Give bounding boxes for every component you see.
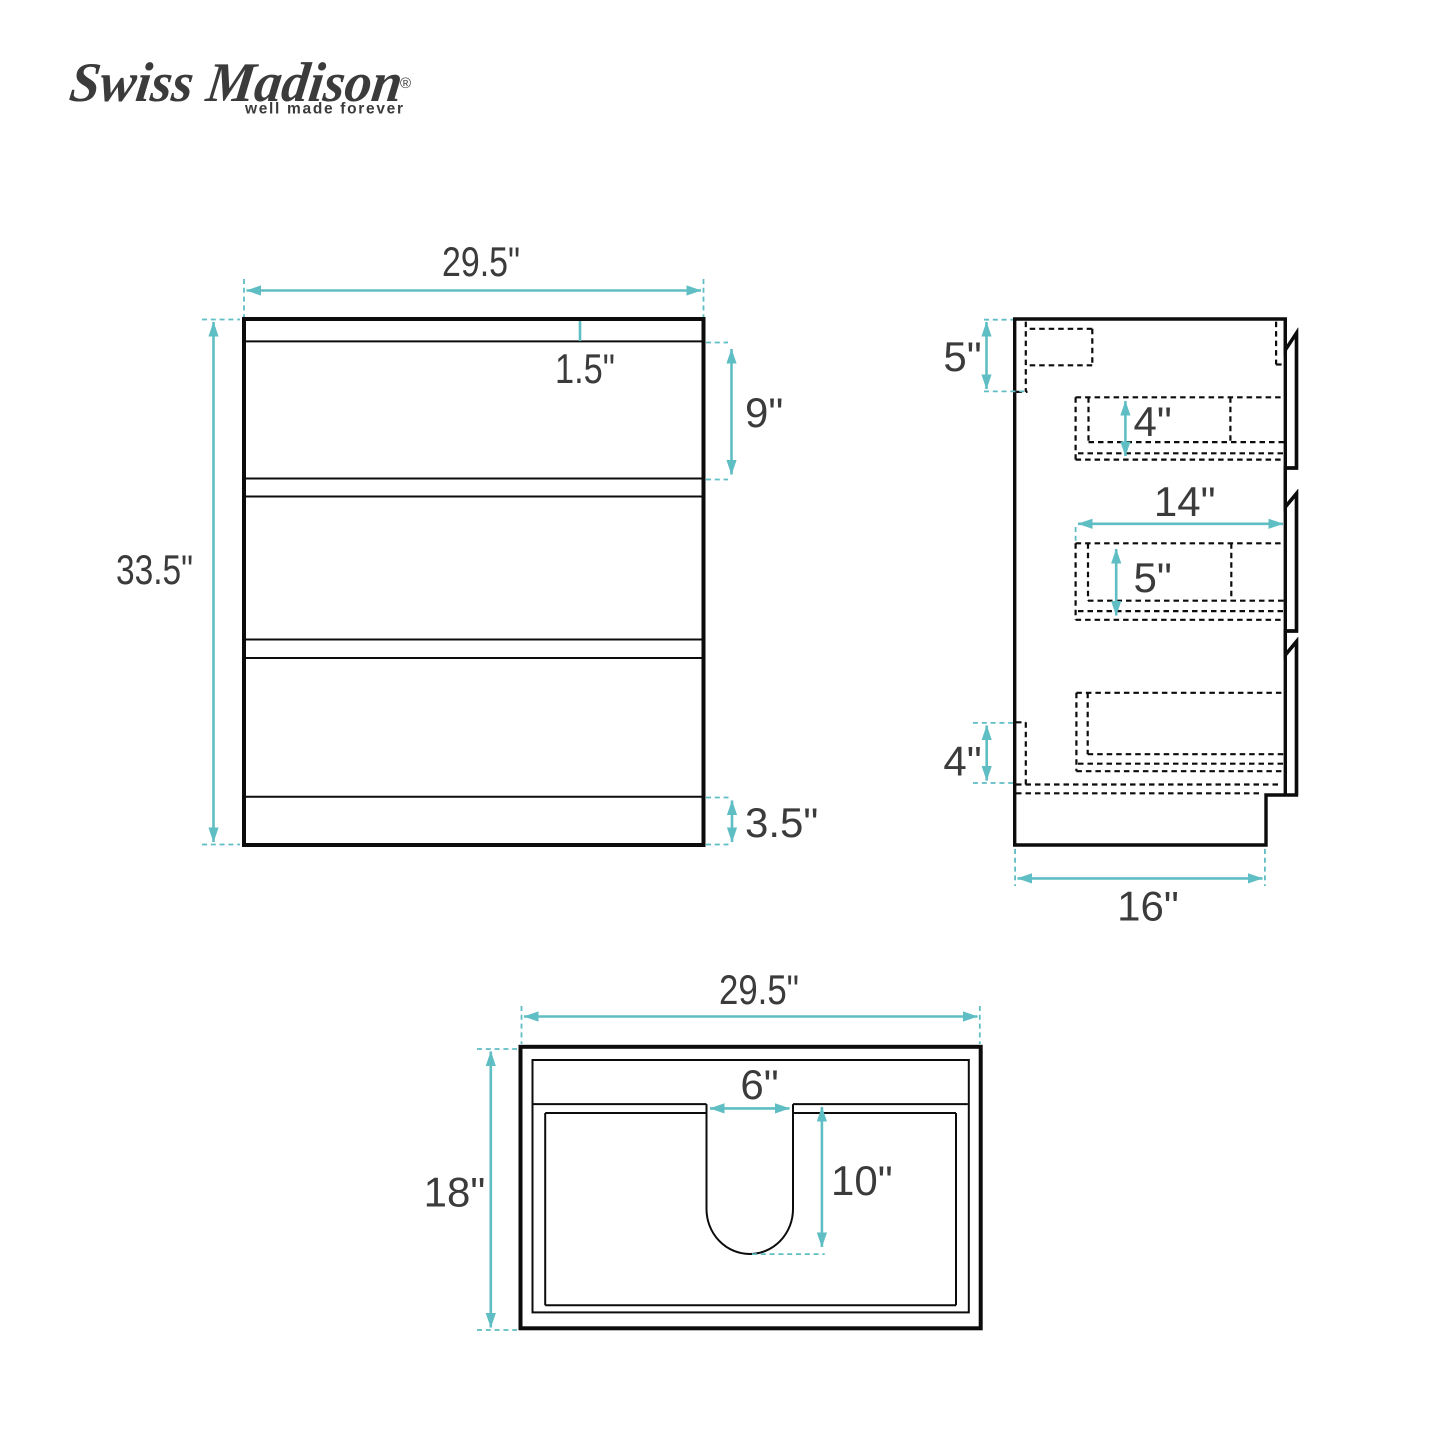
- svg-text:1.5": 1.5": [555, 345, 615, 392]
- svg-text:16": 16": [1117, 883, 1179, 930]
- svg-text:6": 6": [740, 1061, 778, 1108]
- svg-text:29.5": 29.5": [719, 966, 799, 1013]
- svg-text:29.5": 29.5": [442, 238, 520, 285]
- svg-text:5": 5": [1134, 554, 1172, 601]
- svg-text:18": 18": [424, 1169, 486, 1216]
- svg-text:10": 10": [831, 1157, 893, 1204]
- svg-text:5": 5": [943, 333, 981, 380]
- svg-text:®: ®: [400, 75, 411, 92]
- svg-text:4": 4": [1134, 398, 1172, 445]
- svg-text:3.5": 3.5": [745, 799, 818, 846]
- svg-text:4": 4": [943, 738, 981, 785]
- svg-text:33.5": 33.5": [116, 546, 193, 593]
- svg-text:14": 14": [1154, 478, 1216, 525]
- svg-text:9": 9": [745, 389, 783, 436]
